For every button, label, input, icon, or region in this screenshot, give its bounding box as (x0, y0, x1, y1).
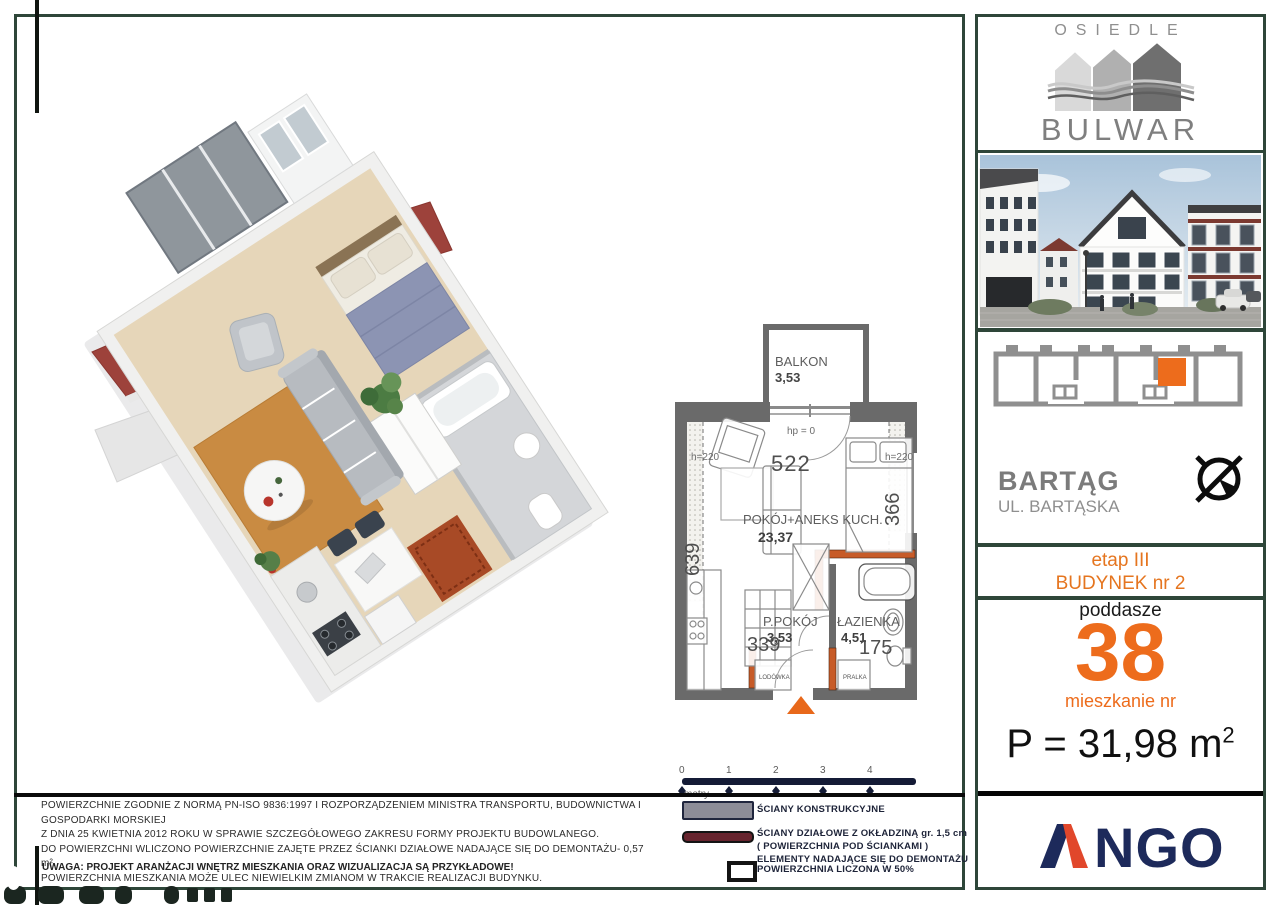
tick-1: 1 (726, 765, 732, 776)
sidebar-black-divider (978, 791, 1263, 796)
bulwar-logo-icon (1046, 40, 1196, 112)
main-room-area: 23,37 (758, 529, 793, 545)
floorplan-sheet: { "brand": { "top": "OSIEDLE", "name": "… (0, 0, 1280, 905)
building-left (980, 169, 1038, 315)
legend-partition-label-1: ŚCIANY DZIAŁOWE Z OKŁADZINĄ gr. 1,5 cm (757, 828, 967, 839)
watermark-blob (38, 886, 64, 904)
sidebar-divider (978, 328, 1263, 332)
legend-structural-label: ŚCIANY KONSTRUKCYJNE (757, 804, 885, 815)
legend-structural-swatch (682, 801, 754, 820)
unit-number: 38 (978, 613, 1263, 693)
dim-639: 639 (682, 543, 704, 576)
height-right: h=220 (885, 452, 914, 463)
fridge-label: LODÓWKA (759, 674, 790, 681)
legend-partition-label-2: ( POWIERZCHNIA POD ŚCIANKAMI ) (757, 841, 928, 852)
dim-366: 366 (882, 493, 904, 526)
tick-3: 3 (820, 765, 826, 776)
brand-name-label: BULWAR (978, 112, 1263, 148)
hall-label: P.POKÓJ (763, 614, 818, 629)
compass-icon (1192, 452, 1246, 506)
balcony-label: BALKON (775, 354, 828, 369)
watermark-blob (164, 886, 179, 904)
arrangement-note: UWAGA: PROJEKT ARANŻACJI WNĘTRZ MIESZKAN… (42, 862, 514, 873)
main-room-label: POKÓJ+ANEKS KUCH. (743, 512, 883, 527)
estate-photo (980, 155, 1261, 327)
stage-block: etap III BUDYNEK nr 2 (978, 549, 1263, 595)
location-name: BARTĄG (998, 466, 1120, 497)
main-divider-line (14, 793, 965, 797)
unit-number-caption: mieszkanie nr (978, 691, 1263, 712)
legend-half-area-swatch (727, 861, 757, 882)
legal-line: POWIERZCHNIE ZGODNIE Z NORMĄ PN-ISO 9836… (41, 799, 651, 828)
tick-2: 2 (773, 765, 779, 776)
legal-line: Z DNIA 25 KWIETNIA 2012 ROKU W SPRAWIE S… (41, 828, 651, 843)
sidebar-divider (978, 150, 1263, 153)
legend-half-area-label: POWIERZCHNIA LICZONA W 50% (757, 864, 914, 875)
ango-a-right (1063, 824, 1088, 868)
dim-522: 522 (771, 451, 811, 476)
entrance-arrow-icon (787, 696, 815, 714)
apartment-3d-visualization (55, 130, 635, 730)
watermark-blob (115, 886, 132, 904)
selected-unit-highlight (1158, 358, 1186, 386)
legal-disclaimer: POWIERZCHNIE ZGODNIE Z NORMĄ PN-ISO 9836… (41, 799, 651, 887)
parapet-note: hp = 0 (787, 426, 816, 437)
watermark-blob (204, 888, 215, 902)
sidebar-divider (978, 543, 1263, 547)
dim-339: 339 (747, 634, 780, 656)
stove-outline (687, 618, 707, 644)
print-mark-top (35, 0, 39, 113)
dim-175: 175 (859, 637, 892, 659)
unit-area: P = 31,98 m2 (978, 722, 1263, 767)
watermark-blob (187, 888, 198, 902)
tick-0: 0 (679, 765, 685, 776)
stage-etap: etap III (978, 549, 1263, 572)
height-left: h=220 (691, 452, 720, 463)
floor-location-diagram (992, 340, 1244, 414)
washer-label: PRALKA (843, 675, 867, 681)
bath-label: ŁAZIENKA (837, 614, 900, 629)
ango-logo: NGO (1038, 822, 1214, 870)
watermark-blob (79, 886, 104, 904)
watermark-white-blob (6, 866, 21, 890)
brand-estate-label: OSIEDLE (978, 22, 1263, 40)
location-street: UL. BARTĄSKA (998, 497, 1120, 517)
legend-partition-swatch (682, 831, 754, 843)
ango-text: NGO (1094, 816, 1225, 879)
balcony-area: 3,53 (775, 370, 800, 385)
apartment-2d-floorplan: BALKON 3,53 hp = 0 h=220 h=220 522 366 6… (663, 318, 935, 718)
watermark-blob (221, 888, 232, 902)
legal-line: POWIERZCHNIA MIESZKANIA MOŻE ULEC NIEWIE… (41, 872, 651, 887)
tick-4: 4 (867, 765, 873, 776)
stage-building: BUDYNEK nr 2 (978, 572, 1263, 595)
